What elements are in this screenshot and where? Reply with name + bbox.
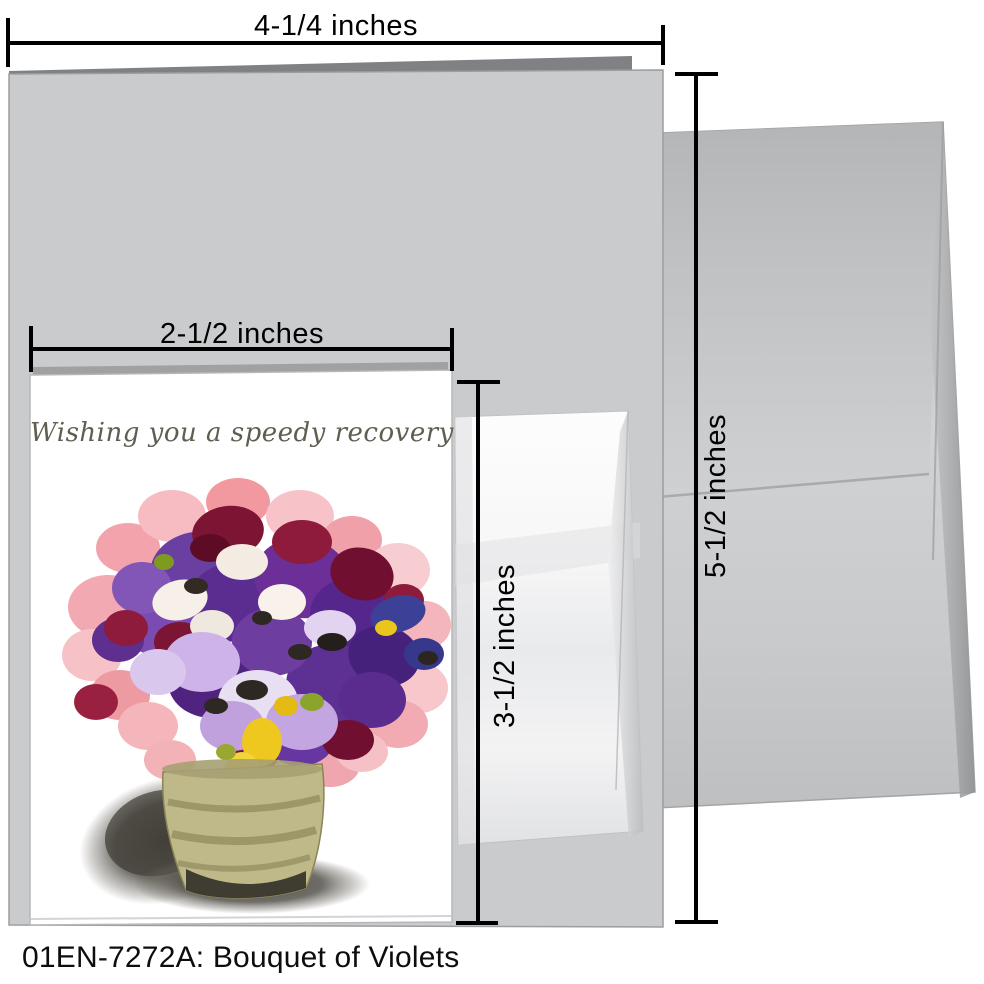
flower-pot [162,759,324,898]
dimension-label-inner-height: 3-1/2 inches [489,486,521,806]
small-envelope-left-shade [455,416,475,845]
pot-rim [162,759,322,779]
dimension-label-envelope-height: 5-1/2 inches [700,336,732,656]
product-caption: 01EN-7272A: Bouquet of Violets [22,941,459,975]
small-envelope [455,411,643,845]
dimension-label-outer-width: 4-1/4 inches [0,10,672,43]
card-greeting-message: Wishing you a speedy recovery [30,418,452,448]
product-mockup: 4-1/4 inches 5-1/2 inches 2-1/2 inches 3… [0,0,984,984]
dimension-label-inner-width: 2-1/2 inches [32,318,452,351]
